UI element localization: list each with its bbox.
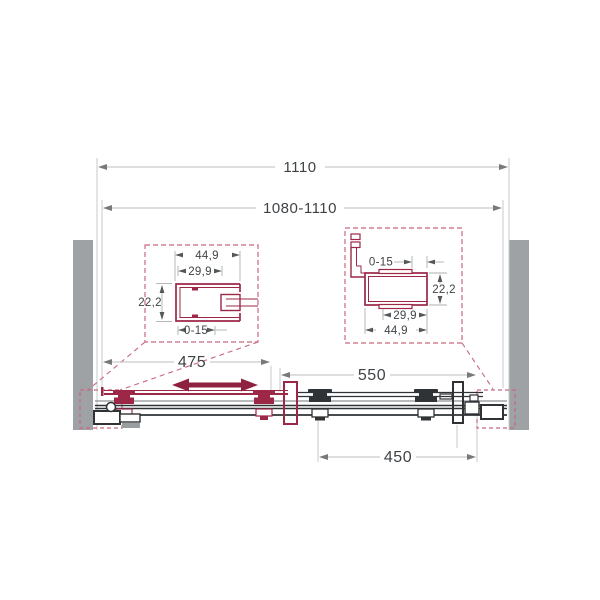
- opening-width-label: 550: [358, 367, 386, 384]
- detail-right-outer-width-label: 44,9: [384, 325, 408, 337]
- overall-width-label: 1110: [283, 159, 316, 176]
- technical-drawing-page: 1110 1080-1110: [0, 0, 600, 600]
- door-travel-label: 475: [178, 354, 206, 371]
- wall-profile-left: [94, 403, 140, 429]
- right-wall: [509, 240, 529, 430]
- left-wall: [73, 240, 93, 430]
- dim-adjustable-width: 1080-1110: [103, 200, 502, 217]
- detail-right-depth-label: 22,2: [432, 284, 456, 296]
- drawing-canvas: 1110 1080-1110: [0, 0, 600, 600]
- track-assembly: [95, 401, 507, 415]
- detail-left-adjustment-label: 0-15: [184, 325, 208, 337]
- detail-right-adjustment-label: 0-15: [369, 257, 393, 269]
- adjustable-width-label: 1080-1110: [263, 200, 337, 217]
- pivot-circle: [107, 403, 116, 412]
- roller-red-right: [253, 391, 275, 405]
- roller-dark-right: [414, 389, 438, 402]
- roller-dark-left: [308, 389, 332, 402]
- dim-overall-width: 1110: [98, 159, 508, 176]
- detail-left-depth-label: 22,2: [138, 297, 162, 309]
- travel-direction-arrow: [172, 379, 258, 392]
- fixed-panel-width-label: 450: [384, 449, 412, 466]
- dim-opening-width: 550: [281, 367, 476, 384]
- dim-fixed-panel-width: 450: [319, 449, 476, 466]
- roller-red-left: [113, 391, 135, 405]
- handle-red: [284, 382, 297, 424]
- detail-left-inner-width-label: 29,9: [188, 266, 212, 278]
- detail-right-inner-width-label: 29,9: [393, 310, 417, 322]
- fixed-panel: [298, 382, 483, 423]
- profile-section-left: 44,9 29,9 22,2 0-15: [138, 250, 258, 337]
- handle-right: [453, 382, 463, 423]
- detail-left-outer-width-label: 44,9: [195, 250, 219, 262]
- profile-section-right: 0-15 22,2 29,9 44,9: [351, 234, 456, 337]
